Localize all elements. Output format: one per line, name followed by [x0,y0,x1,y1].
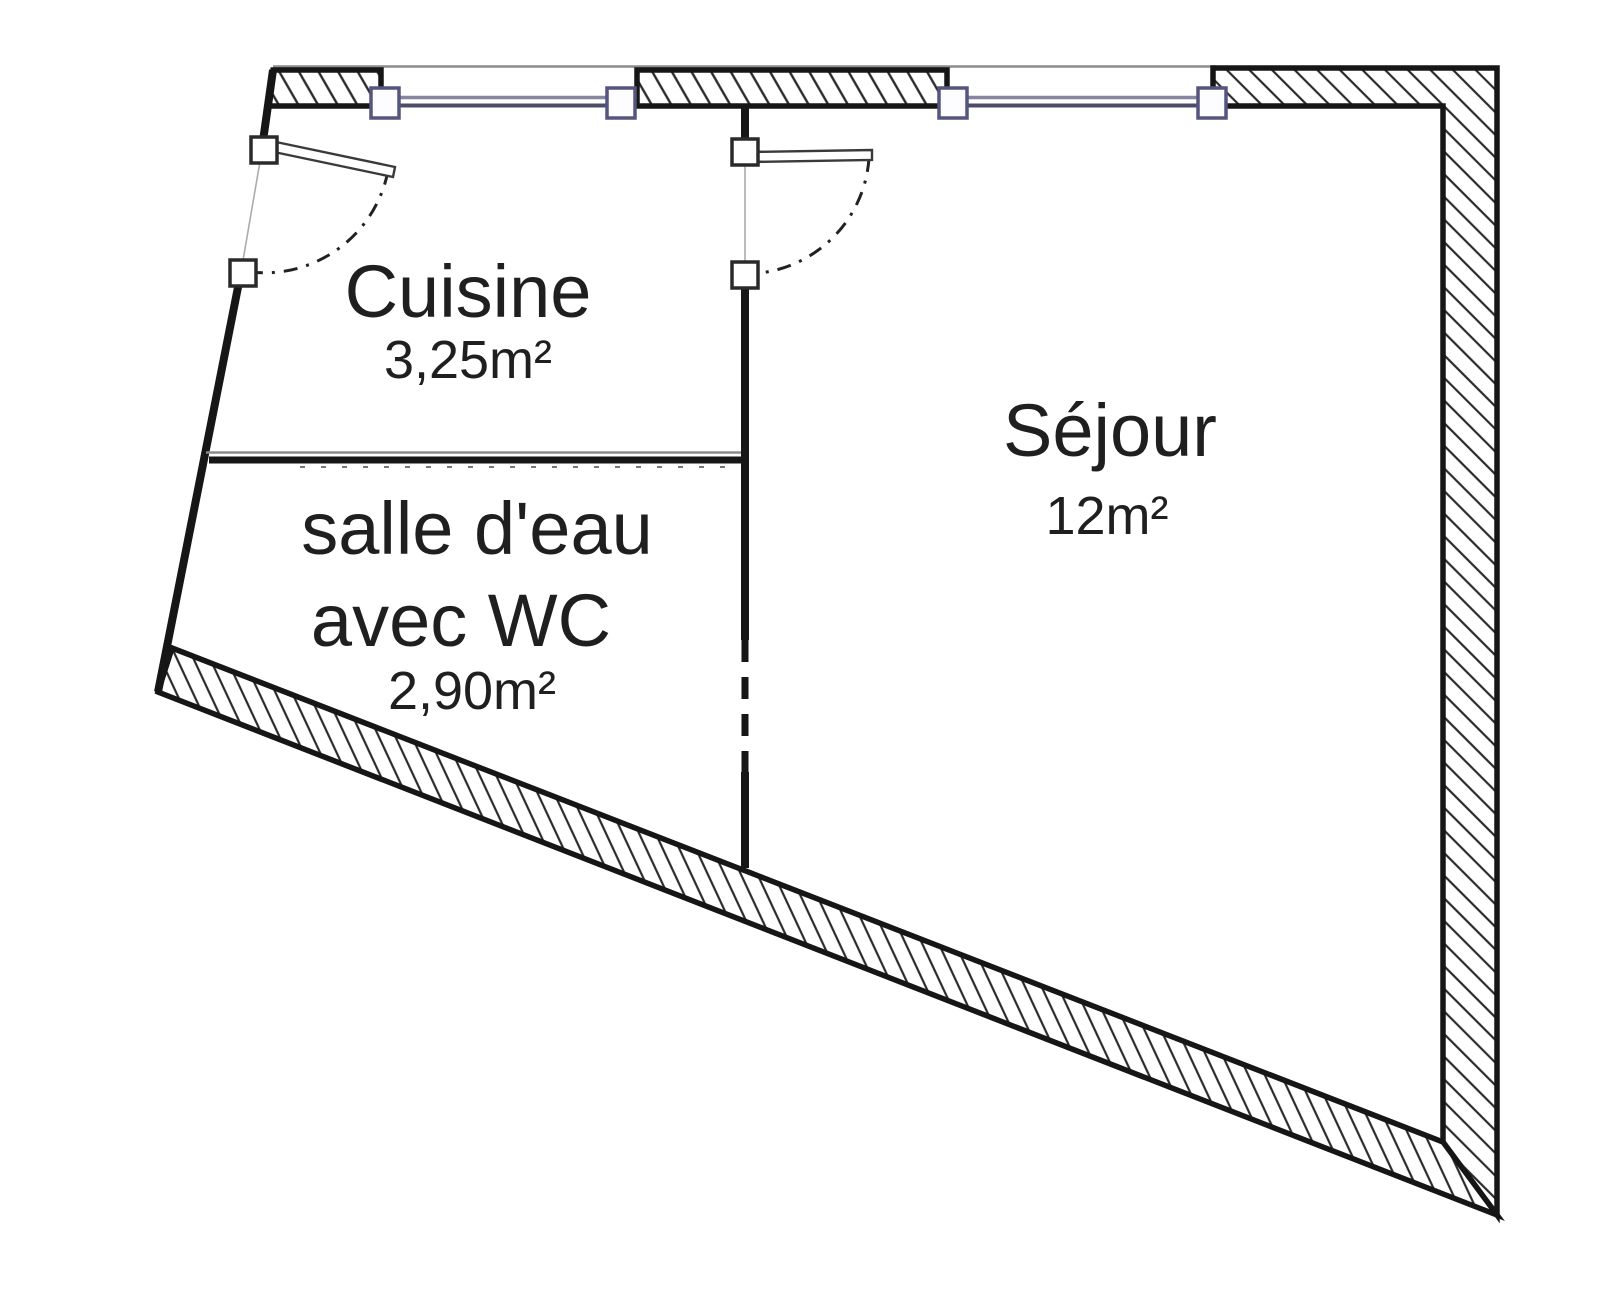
top-wall-middle-segment [637,70,947,106]
window-post [607,88,635,118]
room-area-salle-eau: 2,90m² [388,661,556,721]
entry-door-opening-line [241,150,262,272]
entry-door-leaf [274,142,395,177]
room-area-sejour: 12m² [1045,486,1168,546]
interior-door-hinge-post [732,139,758,165]
interior-door [732,139,872,288]
left-wall-lower-segment [158,272,241,692]
room-label-sejour: Séjour [1003,389,1217,472]
room-label-salle-eau-line2: avec WC [311,579,611,662]
room-area-cuisine: 3,25m² [384,330,552,390]
interior-door-stop-post [732,262,758,288]
interior-door-leaf [748,150,872,162]
window-post [371,88,399,118]
window-post [939,88,967,118]
room-label-salle-eau-line1: salle d'eau [301,487,653,570]
top-right-and-right-wall [1213,68,1497,1215]
interior-door-swing-arc [760,158,869,273]
room-labels: Cuisine 3,25m² salle d'eau avec WC 2,90m… [301,250,1217,721]
floor-plan-page: Cuisine 3,25m² salle d'eau avec WC 2,90m… [0,0,1600,1296]
bottom-diagonal-wall [158,648,1497,1215]
entry-door-stop-post [230,260,256,286]
room-divider [206,453,745,468]
top-wall-left-segment [267,70,381,106]
room-label-cuisine: Cuisine [345,250,592,333]
entry-door-hinge-post [251,137,277,163]
floor-plan: Cuisine 3,25m² salle d'eau avec WC 2,90m… [0,0,1600,1296]
window-post [1198,88,1226,118]
